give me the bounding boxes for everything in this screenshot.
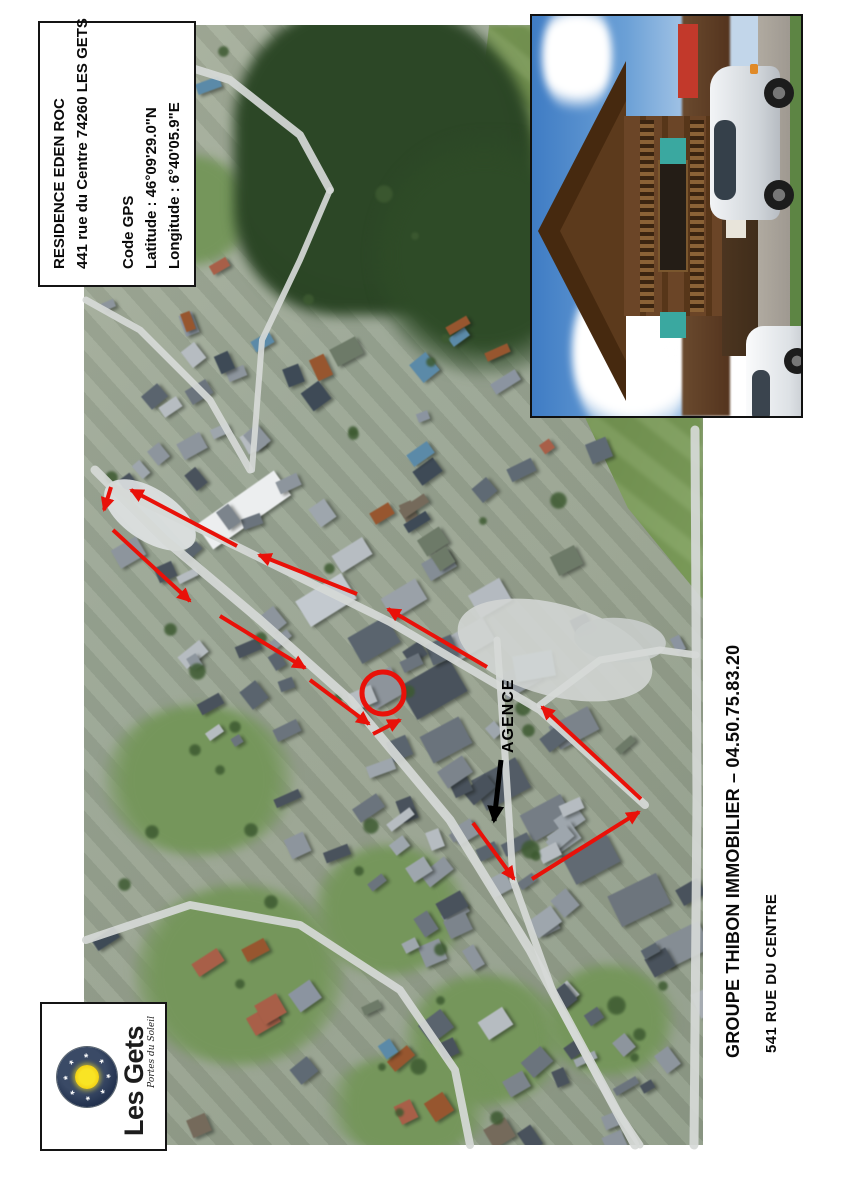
car-windshield [752,370,770,416]
les-gets-logo-box: ******** Les Gets Portes du Soleil [40,1002,167,1151]
residence-name: RESIDENCE EDEN ROC [48,19,71,269]
logo-title: Les Gets [120,1016,148,1136]
document-page: AGENCE RESIDENCE EDEN ROC 441 rue du Cen… [0,0,848,1200]
residence-address: 441 rue du Centre 74260 LES GETS [71,19,94,269]
logo-tagline: Portes du Soleil [148,1016,157,1136]
chalet-windows [660,162,686,270]
gps-longitude: Longitude : 6°40'05.9"E [163,19,186,269]
car-windshield [714,120,736,200]
snowflake-icon: * [94,1057,107,1070]
snowflake-icon: * [94,1084,107,1097]
car-blinker [750,64,758,74]
teal-shutter [660,312,686,338]
red-awning [678,24,698,98]
company-phone-line: GROUPE THIBON IMMOBILIER – 04.50.75.83.2… [714,644,752,1058]
chalet-balcony [690,120,704,312]
gps-latitude: Latitude : 46°09'29.0"N [140,19,163,269]
agency-photo [530,14,803,418]
snowflake-icon: * [62,1074,74,1080]
residence-info-box: RESIDENCE EDEN ROC 441 rue du Centre 742… [38,21,196,287]
chalet-gable [560,101,626,361]
residence-info-text: RESIDENCE EDEN ROC 441 rue du Centre 742… [42,17,194,277]
chalet-balcony [640,120,654,312]
snowflake-icon: * [100,1074,112,1080]
snowflake-icon: * [84,1052,90,1064]
company-address-line: 541 RUE DU CENTRE [757,911,787,1053]
snowflake-icon: * [67,1084,80,1097]
les-gets-logo-icon: ******** [57,1047,117,1107]
teal-shutter [660,138,686,164]
car-wheel [764,78,794,108]
gps-heading: Code GPS [117,19,140,269]
agence-label: AGENCE [493,669,525,753]
snowflake-icon: * [84,1090,90,1102]
agency-photo-content [532,16,801,416]
les-gets-logo-text: Les Gets Portes du Soleil [120,1016,162,1136]
car-wheel [764,180,794,210]
